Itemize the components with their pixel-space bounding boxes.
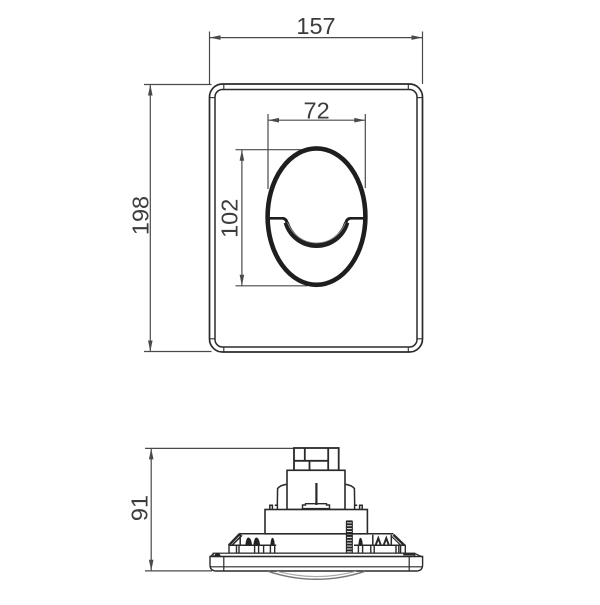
svg-text:198: 198 [127, 196, 153, 235]
svg-text:102: 102 [217, 199, 243, 238]
svg-text:91: 91 [126, 495, 152, 521]
svg-text:72: 72 [304, 98, 330, 124]
svg-text:157: 157 [296, 13, 335, 39]
